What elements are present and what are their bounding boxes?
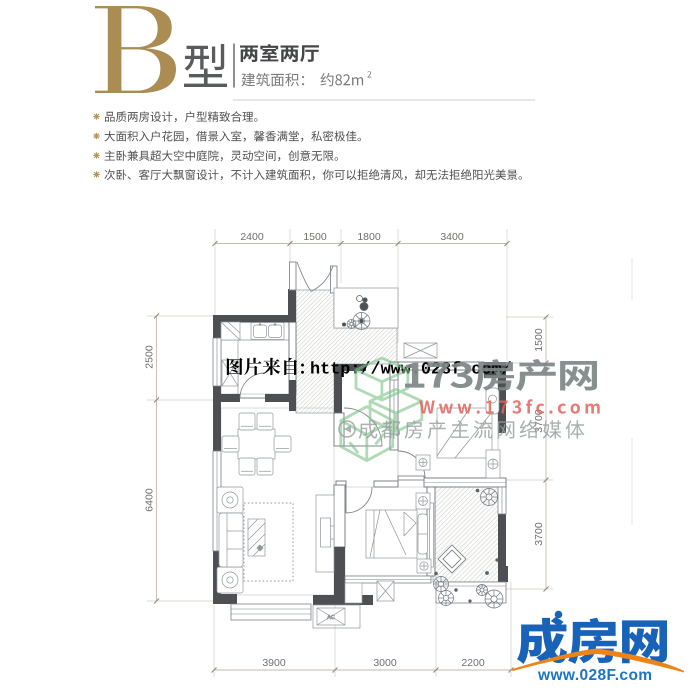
svg-text:AC: AC bbox=[327, 615, 335, 621]
svg-text:1800: 1800 bbox=[357, 231, 381, 243]
svg-text:3700: 3700 bbox=[533, 522, 545, 546]
svg-text:www.028F.com: www.028F.com bbox=[537, 667, 653, 684]
svg-text:3000: 3000 bbox=[373, 657, 397, 669]
svg-text:2200: 2200 bbox=[461, 657, 485, 669]
svg-text:2400: 2400 bbox=[240, 231, 264, 243]
svg-text:1500: 1500 bbox=[533, 328, 545, 352]
svg-text:3400: 3400 bbox=[440, 231, 464, 243]
svg-text:3900: 3900 bbox=[262, 657, 286, 669]
svg-text:1500: 1500 bbox=[303, 231, 327, 243]
svg-text:6400: 6400 bbox=[144, 488, 156, 512]
svg-text:2500: 2500 bbox=[144, 345, 156, 369]
